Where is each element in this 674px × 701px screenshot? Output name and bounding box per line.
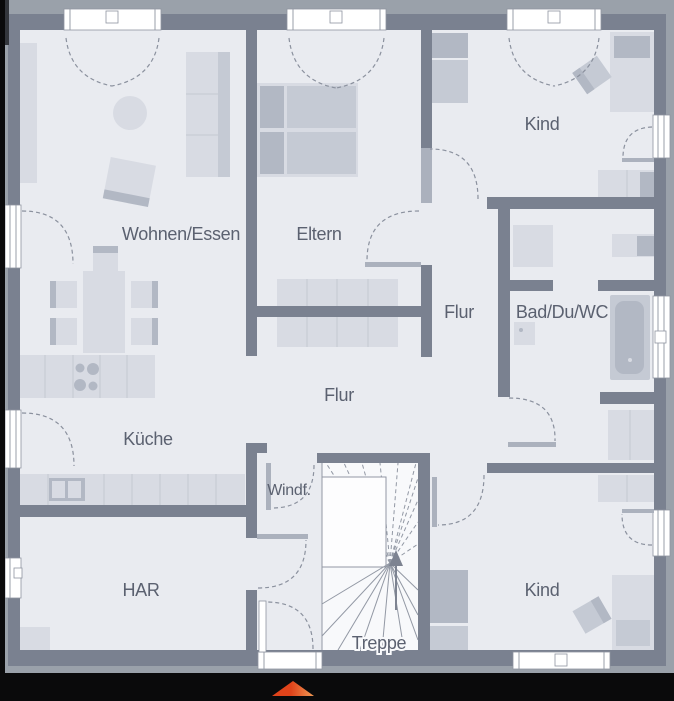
har-door-leaf (257, 534, 308, 539)
bed (612, 575, 654, 650)
floor-plan-svg: Wohnen/Essen Eltern Kind Flur Bad/Du/WC … (0, 0, 674, 701)
room-label-bad: Bad/Du/WC (516, 302, 609, 322)
entrance-door-leaf (259, 601, 266, 652)
eltern-door-leaf (365, 262, 421, 267)
bath-closet (608, 410, 654, 460)
staircase (322, 463, 418, 650)
round-table (113, 96, 147, 130)
room-label-kueche: Küche (123, 429, 173, 449)
window-leaf (622, 509, 654, 513)
room-label-windfang: Windf. (267, 482, 311, 499)
armchair (103, 157, 156, 207)
sideboard (20, 43, 37, 183)
room-label-har: HAR (122, 580, 159, 600)
latch-icon (106, 11, 118, 23)
window-bad (653, 296, 670, 378)
shelf-unit (186, 52, 230, 177)
har-mat (18, 627, 50, 653)
washbasin-icon (612, 234, 654, 257)
room-label-flur-upper: Flur (444, 302, 474, 322)
window-har (5, 558, 22, 598)
toilet-icon (514, 322, 535, 345)
wardrobe (430, 570, 468, 650)
bottom-bar (0, 673, 674, 701)
window-kind-bottom (513, 652, 610, 669)
double-bed (257, 83, 358, 177)
kitchen-counter-upper (20, 355, 155, 398)
bath-door-leaf (508, 442, 556, 447)
room-label-eltern: Eltern (296, 224, 341, 244)
room-label-flur-lower: Flur (324, 385, 354, 405)
latch-icon (548, 11, 560, 23)
bathtub-icon (610, 295, 650, 380)
kind-bottom-door-leaf (432, 477, 437, 527)
left-edge-bar (0, 0, 5, 701)
latch-icon (555, 654, 567, 666)
room-label-kind-top: Kind (525, 114, 560, 134)
room-label-wohnen-essen: Wohnen/Essen (122, 224, 240, 244)
room-label-treppe: Treppe (352, 633, 407, 653)
stair-landing (322, 477, 386, 567)
glass-partition (421, 148, 432, 203)
dresser (598, 170, 654, 200)
dresser (598, 475, 654, 502)
window-leaf (622, 158, 654, 162)
latch-icon (330, 11, 342, 23)
floor-plan-page: Wohnen/Essen Eltern Kind Flur Bad/Du/WC … (0, 0, 674, 701)
bed (610, 32, 654, 112)
latch-icon (655, 331, 666, 343)
wardrobe (432, 33, 468, 103)
sink-icon (49, 478, 85, 501)
shower-icon (513, 225, 553, 267)
kitchen-counter-lower (20, 474, 245, 505)
dining-table (83, 271, 125, 353)
room-label-kind-bottom: Kind (525, 580, 560, 600)
